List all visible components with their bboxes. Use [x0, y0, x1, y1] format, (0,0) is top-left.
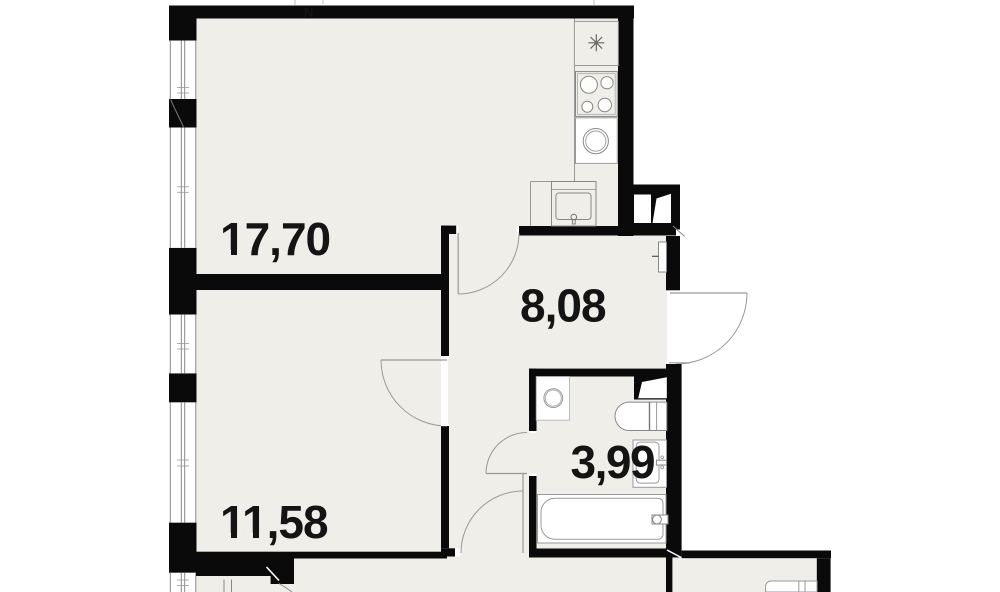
svg-text:17,70: 17,70 — [220, 213, 330, 265]
svg-text:11,58: 11,58 — [220, 496, 328, 548]
svg-text:8,08: 8,08 — [520, 280, 606, 332]
svg-text:3,99: 3,99 — [571, 436, 655, 488]
svg-text:N: N — [304, 5, 313, 20]
